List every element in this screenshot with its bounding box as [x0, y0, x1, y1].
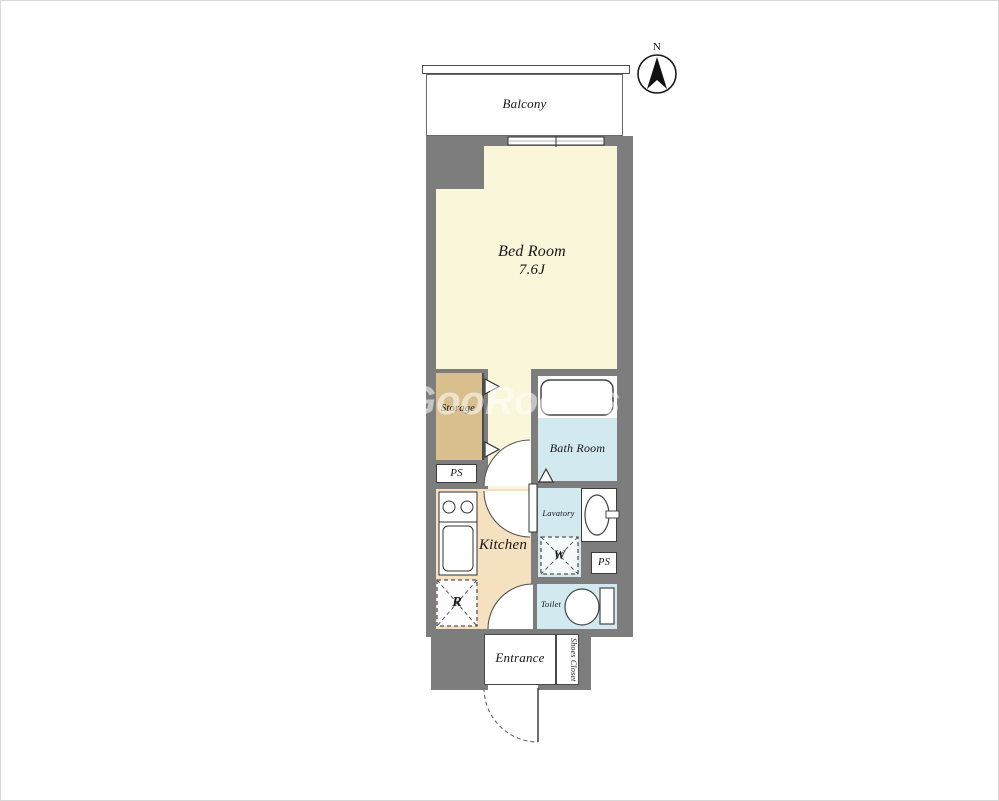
bedroom-label: Bed Room [442, 243, 622, 261]
kitchen-label: Kitchen [456, 537, 550, 554]
storage-label: Storage [433, 403, 483, 415]
pipe-space-right-label: PS [591, 557, 617, 569]
bedroom-corner-column [426, 136, 484, 189]
hallway-floor [488, 369, 531, 489]
bathroom-label: Bath Room [538, 442, 617, 456]
pipe-space-left-label: PS [436, 467, 477, 480]
washer-label: W [541, 548, 578, 563]
lavatory-label: Lavatory [536, 509, 581, 519]
entrance-door-threshold [488, 685, 538, 690]
entrance-door-swing [484, 688, 538, 742]
balcony-railing [422, 65, 630, 74]
floor-plan-image: N Balcony Bed Room 7.6J Storage PS Bath … [0, 0, 999, 801]
compass-icon [638, 55, 676, 93]
lavatory-sink-counter [581, 488, 617, 542]
bathroom-tub-zone [538, 376, 617, 418]
toilet-label: Toilet [536, 600, 566, 610]
lavatory-floor [538, 488, 581, 577]
balcony-label: Balcony [426, 97, 623, 112]
shoes-closet-label: Shoes Closet [559, 637, 577, 683]
bedroom-size-label: 7.6J [442, 262, 622, 279]
fridge-label: R [437, 595, 477, 611]
storage-floor [436, 373, 484, 460]
compass-north-label: N [646, 41, 668, 54]
entrance-label: Entrance [484, 651, 556, 666]
